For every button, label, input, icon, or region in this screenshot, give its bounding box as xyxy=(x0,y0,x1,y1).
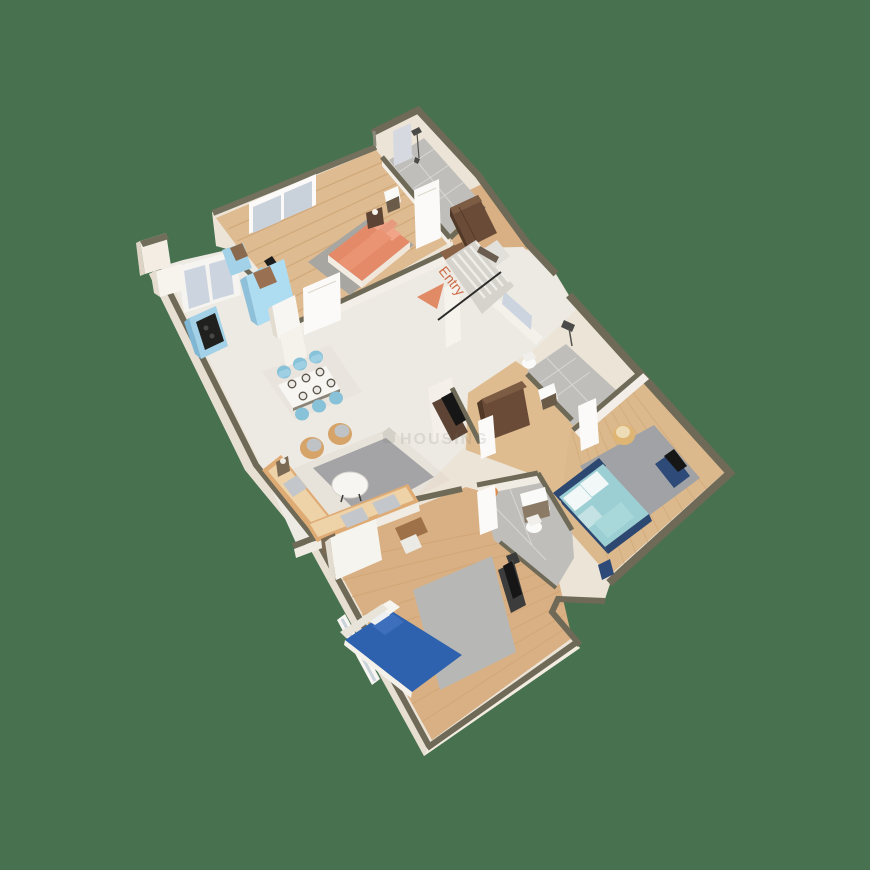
svg-text:HOUSING: HOUSING xyxy=(400,431,489,448)
